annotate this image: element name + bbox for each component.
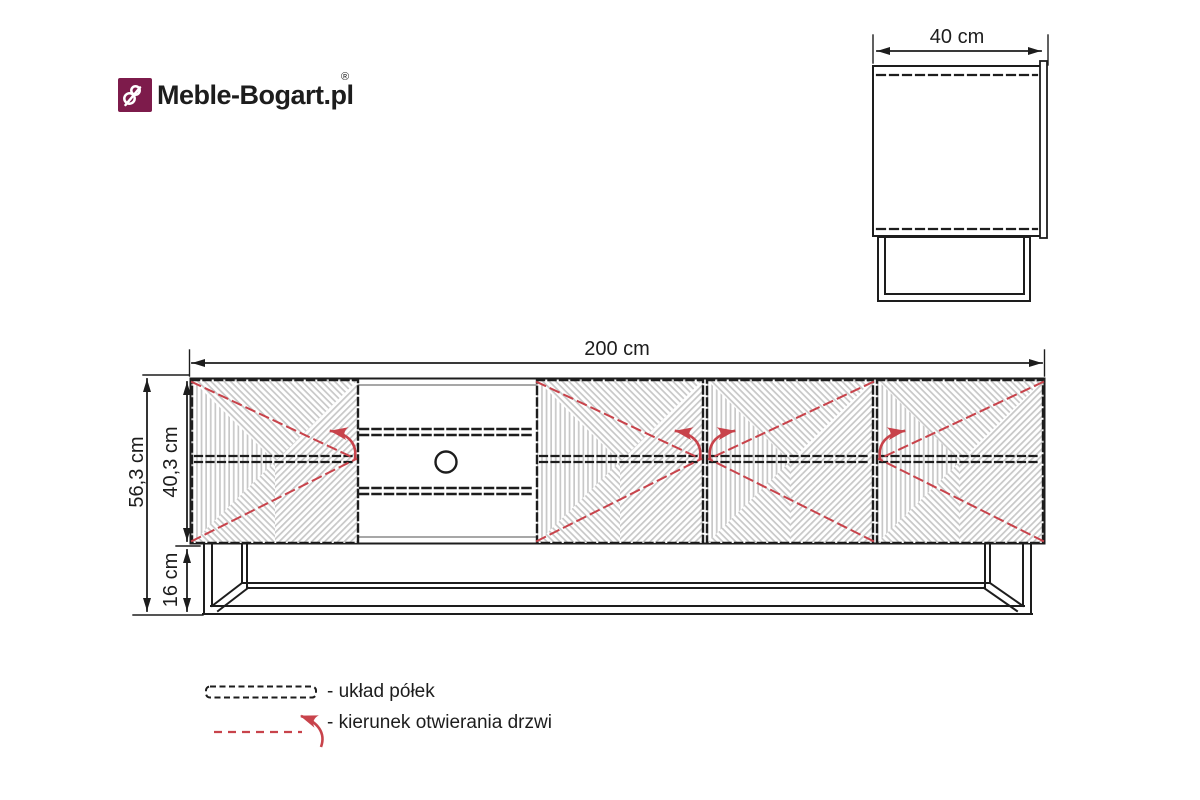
legend-door-arrow-icon — [301, 716, 322, 747]
furniture-diagram-page: Meble-Bogart.pl ® 40 cm 200 cm — [0, 0, 1200, 800]
leg-height-label: 16 cm — [160, 553, 182, 607]
legend: - układ półek - kierunek otwierania drzw… — [206, 681, 552, 747]
legend-door-label: - kierunek otwierania drzwi — [327, 712, 552, 733]
legend-shelf-symbol — [206, 687, 316, 698]
front-doors — [192, 380, 1043, 543]
brand-name: Meble-Bogart.pl — [157, 80, 354, 110]
side-view: 40 cm — [873, 26, 1048, 301]
total-height-label: 56,3 cm — [126, 436, 148, 507]
door-3 — [707, 380, 873, 543]
brand-logo: Meble-Bogart.pl ® — [118, 71, 354, 112]
door-1 — [192, 380, 358, 543]
furniture-diagram: Meble-Bogart.pl ® 40 cm 200 cm — [0, 0, 1200, 800]
side-door-panel — [1040, 61, 1047, 238]
front-leg-frame — [203, 543, 1032, 614]
front-view: 200 cm 56,3 cm 40,3 cm 16 cm — [126, 338, 1045, 615]
legend-shelf-label: - układ półek — [327, 681, 435, 702]
side-body — [873, 66, 1041, 236]
cable-hole — [436, 452, 457, 473]
brand-registered-mark: ® — [341, 71, 349, 83]
body-height-label: 40,3 cm — [160, 426, 182, 497]
side-leg-frame — [878, 237, 1030, 301]
front-width-label: 200 cm — [584, 338, 650, 360]
door-4 — [877, 380, 1043, 543]
door-2 — [537, 380, 703, 543]
side-depth-label: 40 cm — [930, 26, 984, 48]
